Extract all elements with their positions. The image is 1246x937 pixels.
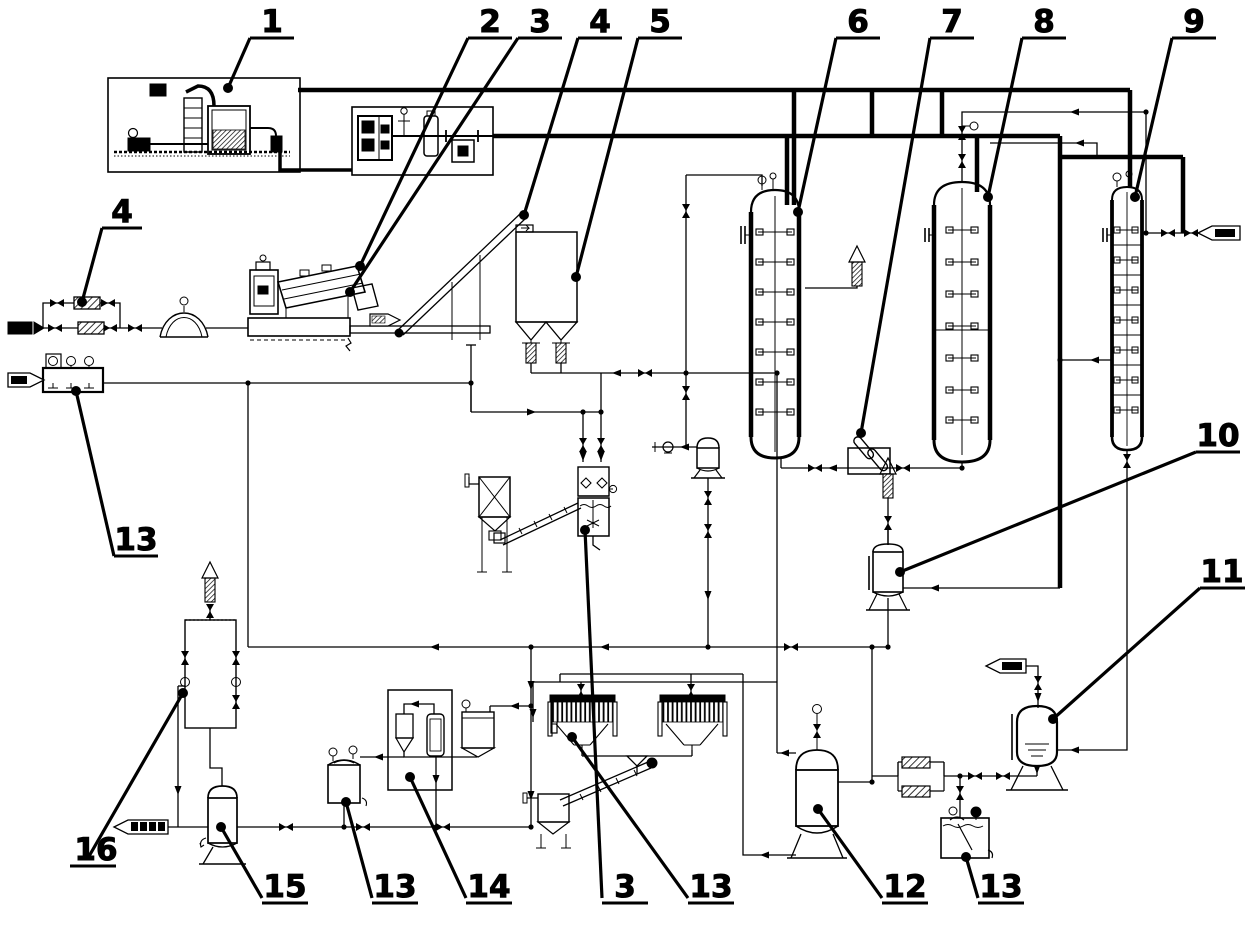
inlet-vessel11-flag [986, 659, 1026, 673]
callout-13-filter-label: 13 [689, 869, 732, 905]
dosing-tank-left [43, 354, 103, 392]
callout-4-label: 4 [589, 4, 611, 40]
callout-13-mid-label: 13 [373, 869, 416, 905]
callout-6-label: 6 [847, 4, 869, 40]
dosing-skid-box [352, 107, 493, 175]
callout-10-label: 10 [1196, 418, 1239, 454]
column-reactor-1 [741, 173, 799, 458]
storage-silo [516, 225, 577, 363]
valves [48, 126, 1198, 831]
agitated-tank-right [941, 807, 993, 858]
callout-14: 14 [406, 773, 513, 906]
inclined-conveyor [395, 213, 526, 340]
process-flow-diagram: 1 2 3 4 5 6 7 8 9 4 [0, 0, 1246, 937]
outlet-bottom-left-flag [114, 820, 168, 834]
callout-2-label: 2 [479, 4, 501, 40]
callout-1: 1 [224, 4, 295, 93]
callout-13-right: 13 [962, 853, 1025, 906]
callout-13-right-label: 13 [979, 869, 1022, 905]
filter-press-2 [658, 695, 727, 750]
callout-3: 3 [346, 4, 563, 297]
callout-8: 8 [984, 4, 1067, 202]
callout-13-mid: 13 [342, 798, 419, 906]
callout-5: 5 [572, 4, 683, 282]
filter-press-1 [548, 695, 617, 750]
vent-stack-column1 [849, 246, 865, 286]
callout-3-bottom-label: 3 [614, 869, 636, 905]
discharge-hopper [523, 793, 571, 848]
callout-12: 12 [814, 805, 929, 906]
receiver-vessel [1006, 706, 1068, 790]
heat-exchanger-pair [898, 757, 944, 797]
callout-12-label: 12 [883, 869, 926, 905]
inlet-right-flag [1198, 226, 1240, 240]
callout-13-left-label: 13 [114, 522, 157, 558]
callout-9: 9 [1131, 4, 1217, 202]
callout-13-left: 13 [72, 387, 159, 559]
callout-14-label: 14 [467, 869, 510, 905]
callout-5-label: 5 [649, 4, 671, 40]
callout-4-left-label: 4 [111, 194, 133, 230]
column-reactor-3 [1103, 171, 1142, 450]
inclined-screw-conveyor [560, 758, 657, 806]
inlet-left-lower-flag [8, 373, 44, 387]
flow-arrows [175, 109, 1100, 859]
scrubber-column [181, 562, 241, 728]
bag-filter [465, 474, 512, 572]
callout-6: 6 [794, 4, 881, 217]
mill-discharge-flag [370, 314, 400, 326]
seal-pot [655, 438, 725, 478]
middle-tank [328, 746, 367, 806]
callout-1-label: 1 [261, 4, 283, 40]
diagram-page: 1 2 3 4 5 6 7 8 9 4 [0, 0, 1246, 937]
callout-15-label: 15 [263, 869, 306, 905]
callout-16-label: 16 [74, 832, 117, 868]
callout-16: 16 [70, 689, 188, 869]
ball-mill [248, 255, 490, 351]
callout-8-label: 8 [1033, 4, 1055, 40]
callout-11-label: 11 [1200, 554, 1243, 590]
callout-7: 7 [857, 4, 975, 438]
callout-4-left: 4 [78, 194, 143, 307]
column-reactor-2 [925, 122, 990, 462]
callout-9-label: 9 [1183, 4, 1205, 40]
callout-7-label: 7 [941, 4, 963, 40]
callout-3-label: 3 [529, 4, 551, 40]
thermal-oil-furnace-unit [108, 78, 300, 172]
stream-flags [8, 226, 1240, 834]
callout-11: 11 [1049, 554, 1246, 724]
inlet-left-upper-flag [8, 322, 44, 334]
callout-10: 10 [896, 418, 1241, 577]
